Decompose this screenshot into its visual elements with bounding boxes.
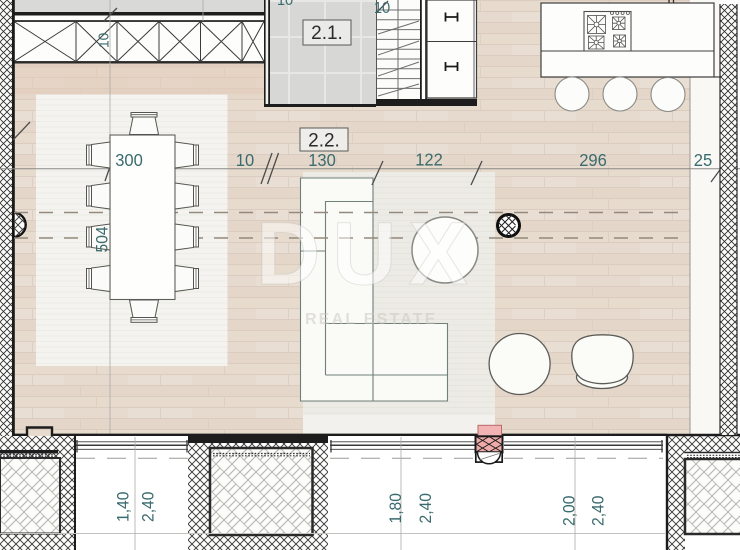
svg-text:10: 10 [96, 33, 113, 48]
svg-text:2,00: 2,00 [560, 496, 579, 526]
svg-text:25: 25 [694, 149, 712, 170]
svg-text:296: 296 [579, 149, 607, 170]
svg-text:10: 10 [236, 149, 254, 170]
svg-text:2,40: 2,40 [589, 496, 608, 526]
svg-text:1,80: 1,80 [386, 493, 405, 523]
svg-text:2.2.: 2.2. [308, 131, 340, 152]
svg-text:10: 10 [374, 0, 390, 17]
svg-text:1,40: 1,40 [114, 492, 133, 522]
svg-text:DUX: DUX [256, 203, 480, 303]
svg-text:130: 130 [308, 149, 336, 170]
svg-text:REAL ESTATE: REAL ESTATE [305, 311, 438, 328]
svg-text:2,40: 2,40 [139, 492, 158, 522]
svg-text:300: 300 [115, 149, 143, 170]
svg-text:10: 10 [277, 0, 293, 9]
svg-text:2.1.: 2.1. [311, 23, 343, 44]
svg-text:2,40: 2,40 [416, 493, 435, 523]
svg-text:504: 504 [93, 226, 112, 252]
svg-text:122: 122 [415, 149, 443, 170]
